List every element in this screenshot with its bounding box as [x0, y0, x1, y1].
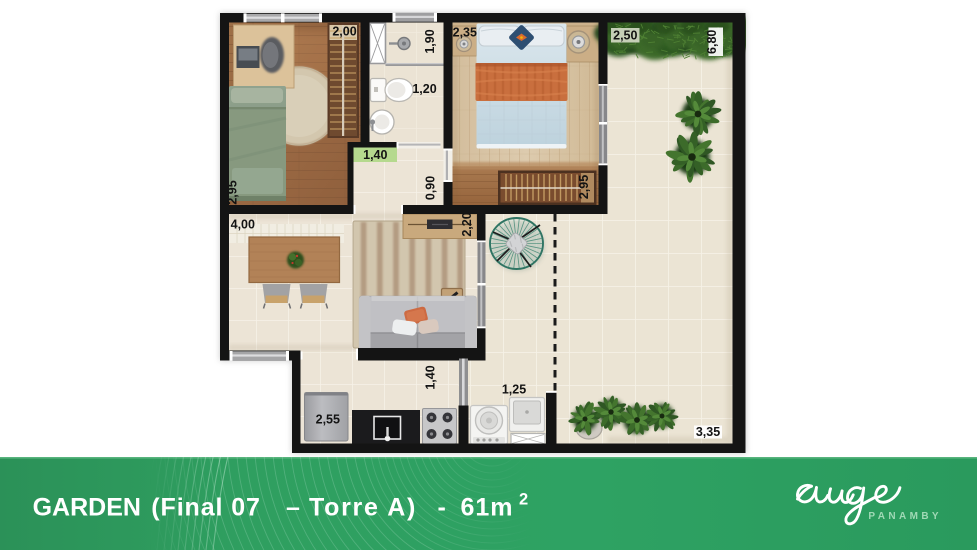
svg-text:2,95: 2,95 [577, 175, 591, 199]
svg-text:1,20: 1,20 [412, 82, 436, 96]
svg-text:2,20: 2,20 [460, 212, 474, 236]
svg-text:2,50: 2,50 [613, 29, 637, 43]
svg-text:–: – [286, 493, 300, 521]
svg-text:GARDEN: GARDEN [33, 493, 141, 521]
svg-text:6,80: 6,80 [705, 30, 719, 54]
svg-text:1,40: 1,40 [363, 148, 387, 162]
svg-text:61m: 61m [461, 493, 514, 521]
svg-text:2,55: 2,55 [316, 413, 340, 427]
svg-text:2,95: 2,95 [226, 180, 240, 204]
svg-text:Torre A): Torre A) [309, 493, 417, 521]
svg-text:(Final 07: (Final 07 [151, 493, 261, 521]
svg-text:0,90: 0,90 [423, 176, 437, 200]
svg-text:2,35: 2,35 [453, 26, 477, 40]
svg-text:PANAMBY: PANAMBY [868, 511, 942, 522]
svg-text:2: 2 [519, 491, 528, 509]
svg-text:1,90: 1,90 [423, 29, 437, 53]
svg-text:-: - [438, 493, 446, 521]
svg-text:1,25: 1,25 [502, 383, 526, 397]
svg-text:4,00: 4,00 [231, 218, 255, 232]
svg-text:1,40: 1,40 [423, 365, 437, 389]
svg-text:2,00: 2,00 [332, 25, 356, 39]
svg-text:3,35: 3,35 [696, 425, 720, 439]
